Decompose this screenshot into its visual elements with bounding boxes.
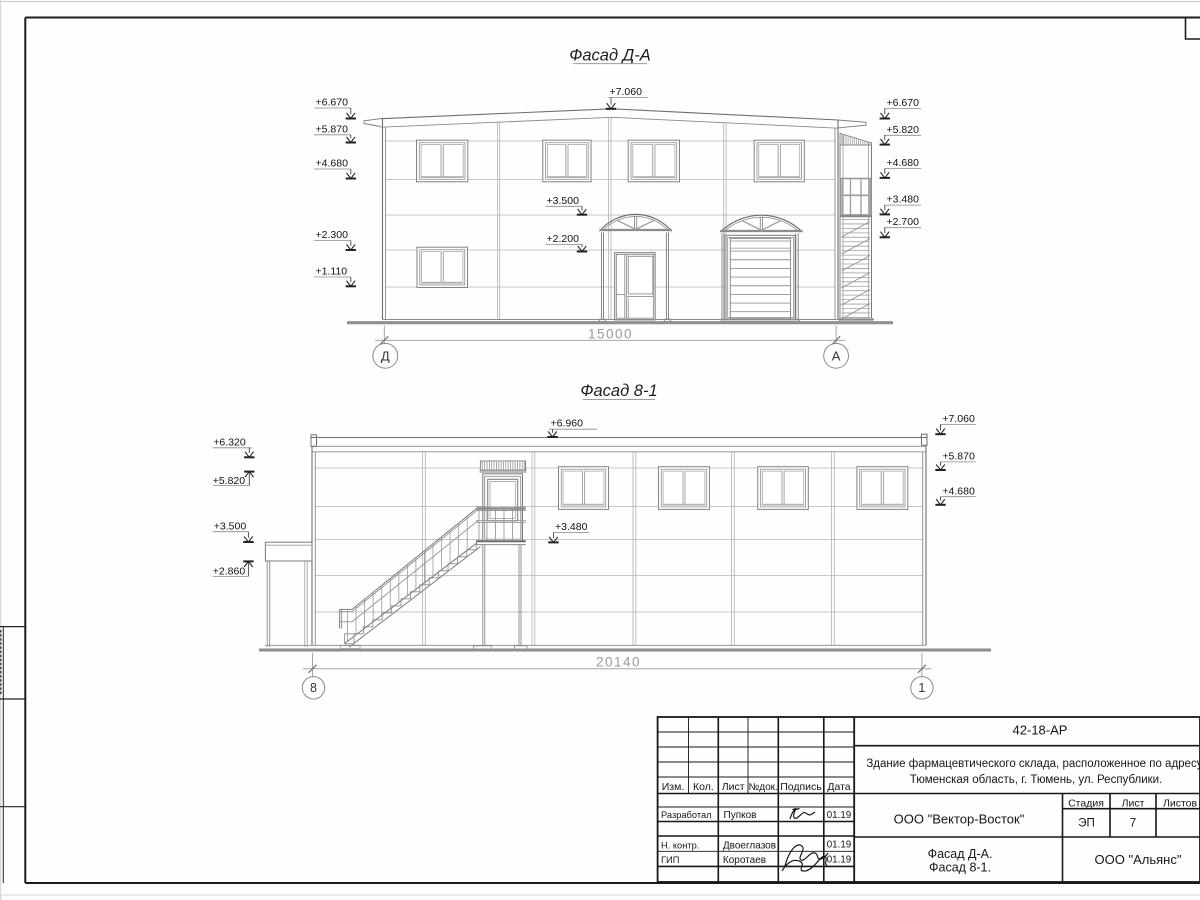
svg-text:+7.060: +7.060 [942, 413, 975, 425]
svg-text:+2.200: +2.200 [547, 233, 580, 245]
svg-text:8: 8 [310, 681, 317, 695]
svg-text:01.19: 01.19 [827, 855, 852, 866]
svg-text:Дата: Дата [827, 781, 850, 793]
svg-text:42-18-АР: 42-18-АР [1013, 723, 1068, 738]
svg-text:Пупков: Пупков [724, 810, 757, 821]
svg-text:А: А [832, 349, 841, 364]
svg-text:+1.110: +1.110 [316, 266, 348, 278]
svg-text:Коротаев: Коротаев [723, 855, 766, 866]
svg-text:Лист: Лист [722, 781, 745, 793]
svg-text:ООО "Вектор-Восток": ООО "Вектор-Восток" [894, 812, 1025, 827]
svg-text:+5.870: +5.870 [942, 451, 975, 463]
svg-text:Н. контр.: Н. контр. [661, 841, 699, 851]
svg-text:Лист: Лист [1122, 797, 1145, 809]
svg-text:+2.860: +2.860 [213, 566, 246, 578]
svg-text:7: 7 [1130, 818, 1136, 830]
svg-text:ГИП: ГИП [661, 855, 679, 865]
svg-text:Изм.: Изм. [662, 781, 685, 793]
svg-text:+6.670: +6.670 [316, 97, 349, 109]
svg-text:+7.060: +7.060 [610, 86, 643, 98]
svg-text:Стадия: Стадия [1068, 797, 1104, 809]
svg-text:+5.820: +5.820 [213, 475, 246, 487]
svg-text:+3.480: +3.480 [555, 521, 588, 533]
svg-text:01.19: 01.19 [827, 840, 852, 851]
svg-text:Подпись: Подпись [780, 781, 822, 793]
svg-text:+6.320: +6.320 [213, 436, 246, 448]
svg-text:ООО "Альянс": ООО "Альянс" [1095, 852, 1182, 867]
svg-text:+2.300: +2.300 [316, 229, 349, 241]
svg-text:+6.960: +6.960 [551, 418, 584, 430]
svg-text:Фасад 8-1: Фасад 8-1 [580, 382, 657, 400]
svg-text:+5.870: +5.870 [316, 123, 349, 135]
svg-text:+4.680: +4.680 [942, 486, 975, 498]
svg-text:+4.680: +4.680 [887, 157, 920, 169]
svg-text:Тюменская область, г. Тюмень,: Тюменская область, г. Тюмень, ул. Респуб… [910, 774, 1163, 786]
svg-text:Д: Д [381, 349, 390, 364]
svg-text:№док.: №док. [749, 782, 778, 793]
svg-text:+3.500: +3.500 [547, 195, 580, 207]
svg-text:Фасад 8-1.: Фасад 8-1. [929, 861, 991, 875]
svg-text:01.19: 01.19 [827, 810, 852, 821]
svg-text:Листов: Листов [1163, 797, 1198, 809]
svg-text:+5.820: +5.820 [887, 124, 920, 136]
svg-text:+4.680: +4.680 [316, 158, 349, 170]
svg-text:Фасад Д-А: Фасад Д-А [569, 47, 651, 65]
svg-text:Кол.: Кол. [693, 781, 714, 793]
svg-text:15000: 15000 [588, 326, 633, 341]
svg-text:Двоеглазов: Двоеглазов [723, 841, 776, 852]
svg-text:20140: 20140 [596, 655, 641, 670]
svg-text:Фасад Д-А.: Фасад Д-А. [928, 847, 993, 861]
svg-text:Разработал: Разработал [661, 810, 712, 820]
svg-text:Здание фармацевтического склад: Здание фармацевтического склада, располо… [866, 758, 1200, 770]
svg-text:+3.500: +3.500 [214, 521, 247, 533]
svg-text:ЭП: ЭП [1078, 818, 1095, 830]
svg-text:1: 1 [918, 681, 925, 695]
svg-text:+6.670: +6.670 [887, 97, 920, 109]
svg-text:+3.480: +3.480 [887, 194, 920, 206]
svg-text:+2.700: +2.700 [887, 216, 920, 228]
